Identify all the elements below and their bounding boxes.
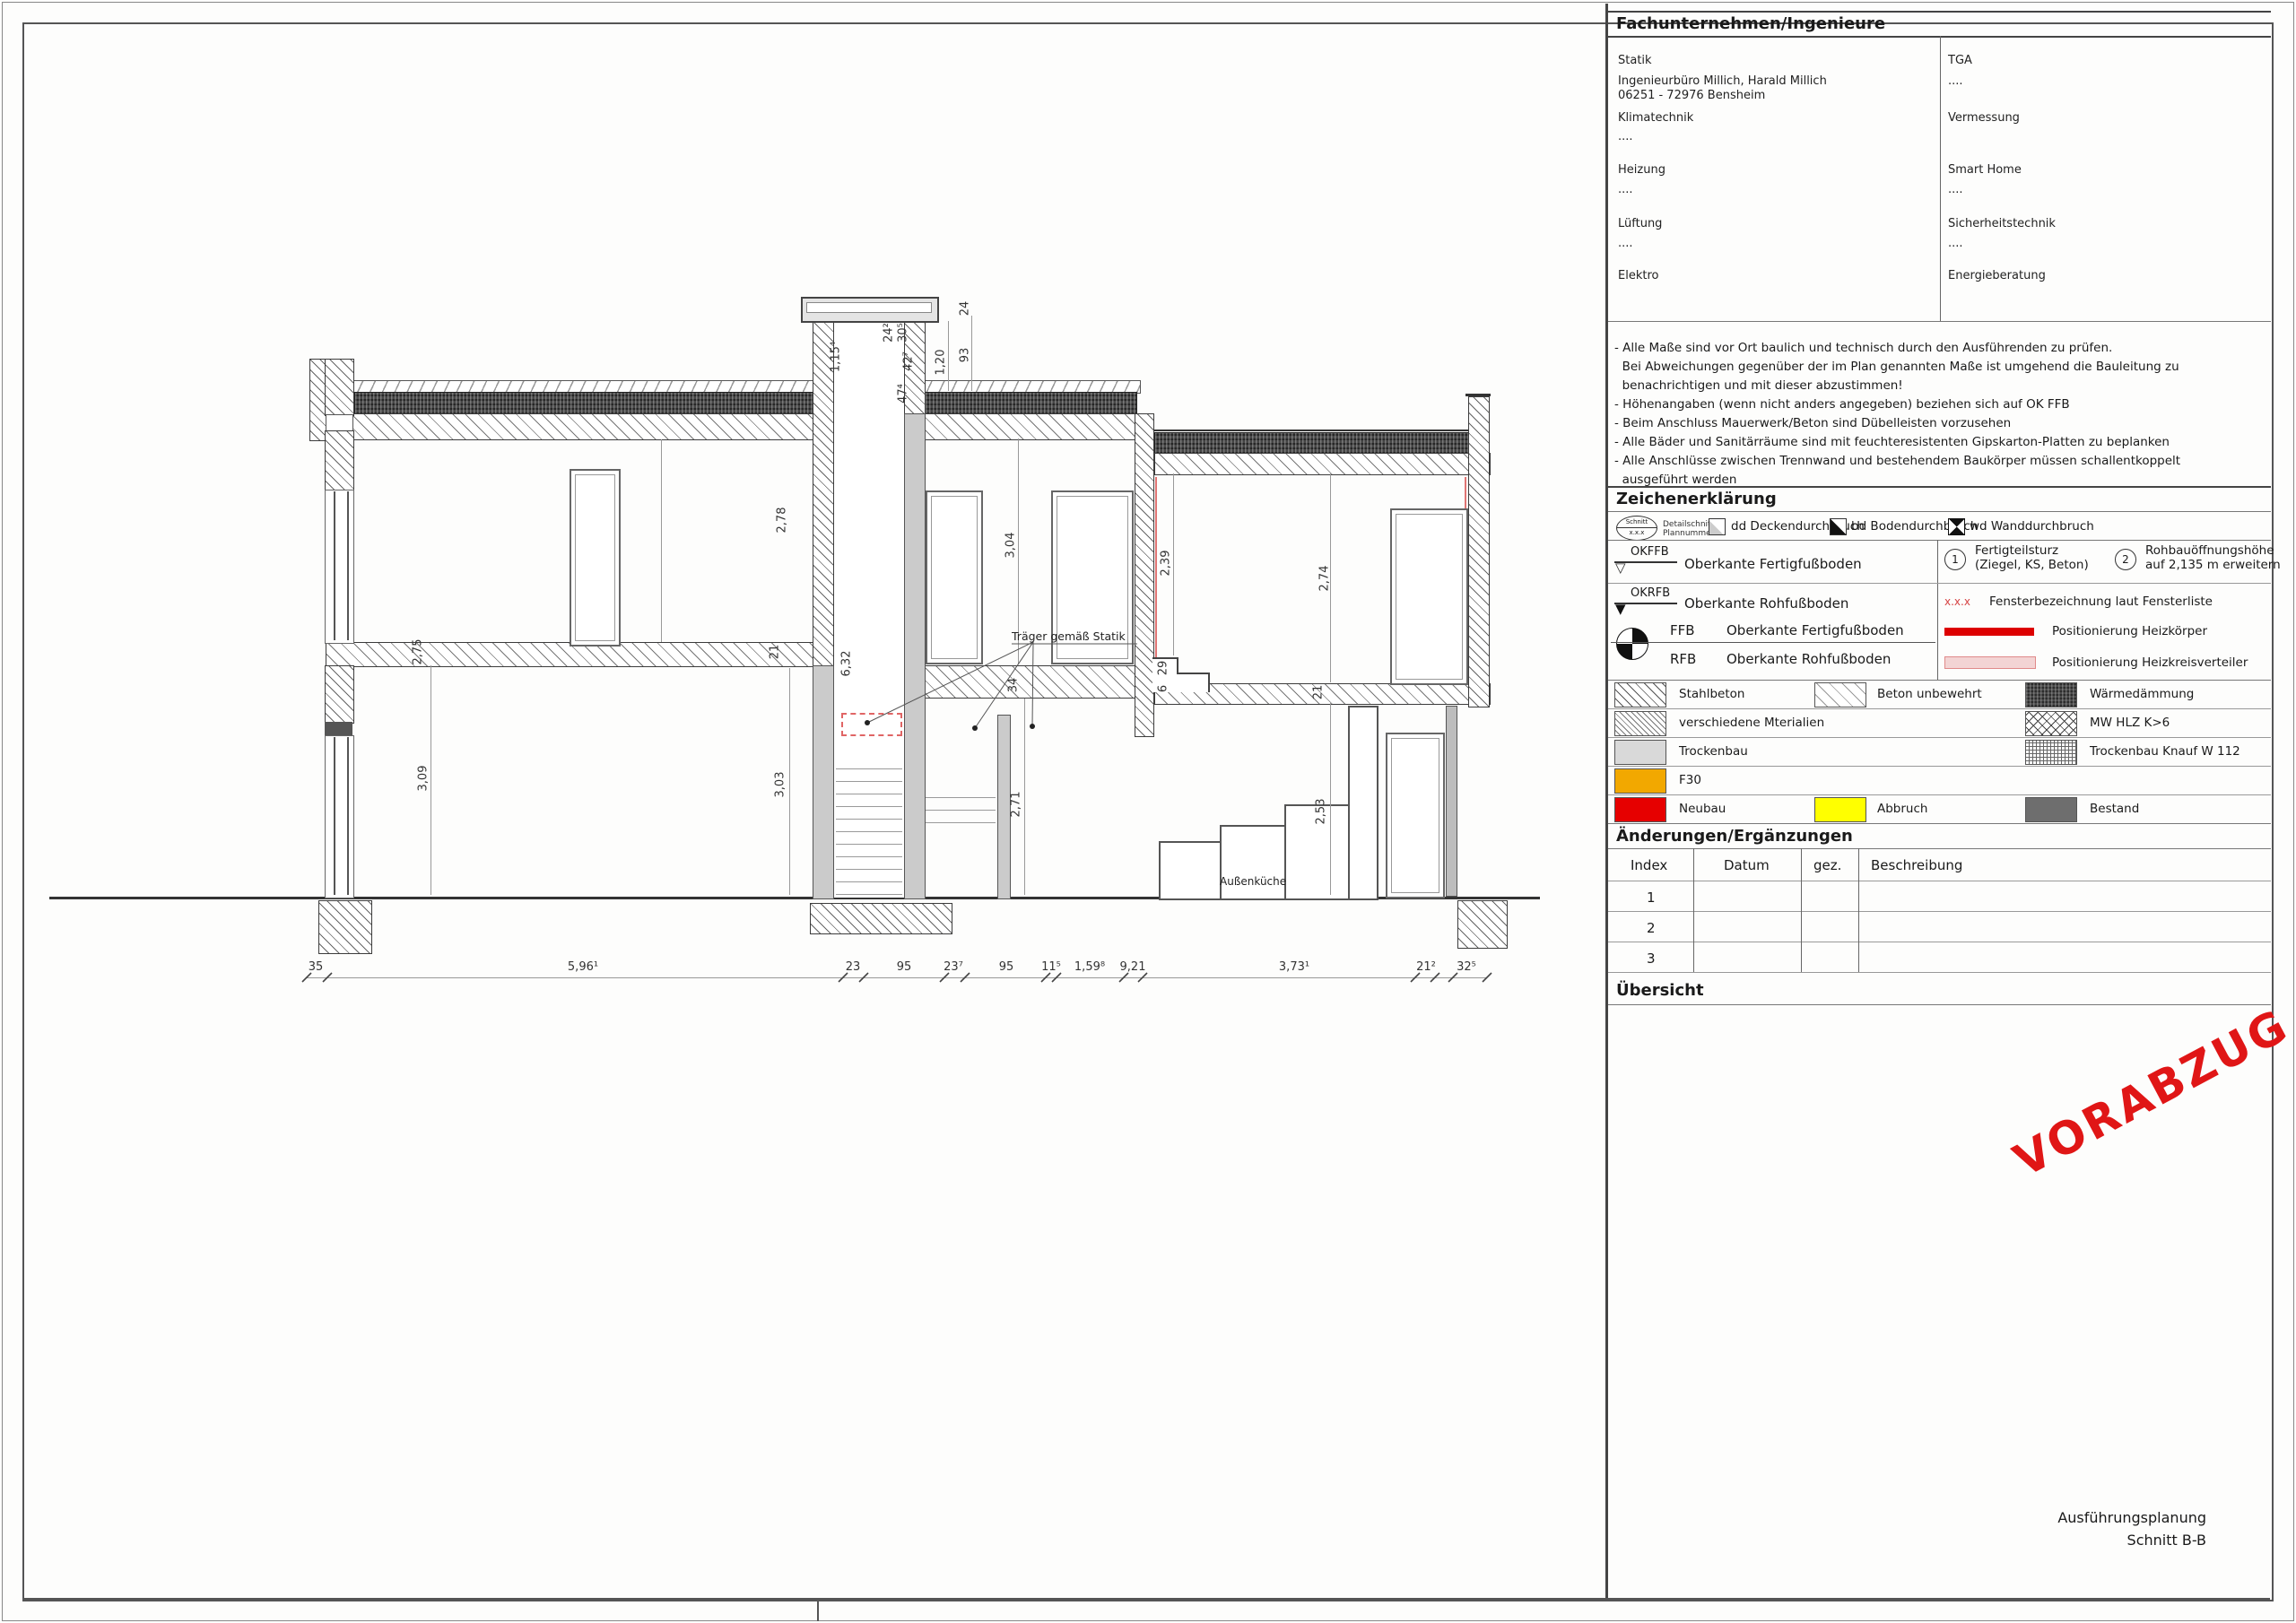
detail-section-symbol: Schnitt x.x.x <box>1616 516 1657 541</box>
chain-dim: 1,59⁸ <box>1074 960 1105 974</box>
heizkreis-label: Positionierung Heizkreisverteiler <box>2052 655 2248 670</box>
divider <box>1937 540 1938 680</box>
table-line <box>1608 911 2271 912</box>
detail-symbol-label: Detailschnitt Plannummer <box>1663 520 1714 538</box>
dimension-label: 34 <box>1007 678 1021 693</box>
note-line: - Alle Maße sind vor Ort baulich und tec… <box>1614 339 2112 358</box>
note-line: - Alle Bäder und Sanitärräume sind mit f… <box>1614 433 2170 452</box>
material-label: Trockenbau <box>1679 744 1748 759</box>
dimension-label: 2,78 <box>776 508 789 534</box>
material-label: Neubau <box>1679 802 1726 816</box>
bd-bodendurchbruch-icon <box>1830 518 1847 535</box>
divider <box>1608 823 2271 824</box>
contact-label: Heizung <box>1618 163 1665 177</box>
material-label: verschiedene Mterialien <box>1679 716 1824 730</box>
swatch-stahlbeton <box>1614 682 1666 707</box>
contact-label: Lüftung <box>1618 217 1662 230</box>
plan-title: Ausführungsplanung Schnitt B-B <box>1883 1506 2206 1551</box>
contact-label: TGA <box>1948 54 1972 67</box>
dimension-label: 24² <box>883 323 896 343</box>
contact-value: .... <box>1618 237 1633 250</box>
wd-wanddurchbruch-icon <box>1948 518 1965 535</box>
index-row-2: 2 <box>1647 920 1656 936</box>
swatch-waermedaemmung <box>2025 682 2077 707</box>
fenster-label: Fensterbezeichnung laut Fensterliste <box>1989 595 2213 609</box>
detail-symbol-bottom: x.x.x <box>1617 528 1657 538</box>
dimension-label: 2,71 <box>1010 792 1023 818</box>
swatch-mw-hlz <box>2025 711 2077 736</box>
chain-dim: 3,73¹ <box>1279 960 1309 974</box>
divider <box>1608 708 2271 709</box>
beam-note: Träger gemäß Statik <box>1012 629 1126 643</box>
heizkoerper-bar <box>1944 628 2034 636</box>
rfb-label: Oberkante Rohfußboden <box>1726 651 1891 667</box>
aenderungen-header: Änderungen/Ergänzungen <box>1616 827 1853 846</box>
dimension-label: 21 <box>1312 685 1326 700</box>
divider <box>1608 848 2271 849</box>
contact-value: .... <box>1948 183 1963 196</box>
contact-label: Statik <box>1618 54 1652 67</box>
swatch-abbruch <box>1814 797 1866 822</box>
note-line: - Höhenangaben (wenn nicht anders angege… <box>1614 395 2070 414</box>
dimension-label: 2,53 <box>1315 799 1328 825</box>
contact-value: .... <box>1948 74 1963 88</box>
chain-dim: 9,21 <box>1120 960 1146 974</box>
contact-value: .... <box>1948 237 1963 250</box>
chain-dim: 95 <box>897 960 912 974</box>
note-line: - Beim Anschluss Mauerwerk/Beton sind Dü… <box>1614 414 2011 433</box>
contact-label: Smart Home <box>1948 163 2022 177</box>
col-header-index: Index <box>1631 857 1667 873</box>
material-label: Stahlbeton <box>1679 687 1744 701</box>
col-header-beschreibung: Beschreibung <box>1871 857 1962 873</box>
table-line <box>1608 942 2271 942</box>
fenster-mark: x.x.x <box>1944 595 1970 608</box>
material-label: F30 <box>1679 773 1701 787</box>
heizkoerper-label: Positionierung Heizkörper <box>2052 624 2207 638</box>
dimension-label: 93 <box>959 348 972 363</box>
swatch-bestand <box>2025 797 2077 822</box>
divider <box>1608 486 2271 488</box>
material-label: Wärmedämmung <box>2090 687 2194 701</box>
wd-label: wd Wanddurchbruch <box>1970 519 2094 534</box>
divider <box>1608 11 2271 13</box>
contact-label: Vermessung <box>1948 111 2020 125</box>
material-label: Abbruch <box>1877 802 1927 816</box>
okrfb-triangle-icon: ▼ <box>1615 603 1626 616</box>
dimension-label: 47⁴ <box>897 384 910 404</box>
divider <box>1608 737 2271 738</box>
okffb-triangle-icon: ▽ <box>1615 561 1626 575</box>
material-label: Bestand <box>2090 802 2139 816</box>
zeichenerklaerung-header: Zeichenerklärung <box>1616 490 1777 508</box>
chain-dim: 35 <box>309 960 324 974</box>
table-line <box>1693 848 1694 972</box>
table-line <box>1858 848 1859 972</box>
chain-dim: 23 <box>846 960 861 974</box>
rohbau-circle: 2 <box>2115 549 2136 570</box>
chain-dim: 11⁵ <box>1041 960 1061 974</box>
dimension-label: 42⁷ <box>902 352 916 371</box>
sturz-circle: 1 <box>1944 549 1966 570</box>
divider <box>1940 36 1941 321</box>
swatch-f30 <box>1614 768 1666 794</box>
ffb-label: Oberkante Fertigfußboden <box>1726 622 1904 638</box>
swatch-knauf <box>2025 740 2077 765</box>
dimension-label: 29 <box>1157 661 1170 676</box>
chain-dim: 95 <box>999 960 1014 974</box>
dimension-label: 3,09 <box>417 766 430 792</box>
okrfb-label: Oberkante Rohfußboden <box>1684 595 1848 612</box>
dimension-label: 24 <box>959 301 972 317</box>
section-drawing: 2,78 3,04 2,39 2,74 3,09 3,03 2,71 2,53 … <box>0 0 1605 1623</box>
contact-label: Sicherheitstechnik <box>1948 217 2056 230</box>
plan-title-line2: Schnitt B-B <box>1883 1529 2206 1551</box>
chain-dim: 32⁵ <box>1457 960 1476 974</box>
plan-title-line1: Ausführungsplanung <box>1883 1506 2206 1529</box>
col-header-gez: gez. <box>1813 857 1841 873</box>
dimension-label: 3,04 <box>1004 533 1018 559</box>
contact-label: Elektro <box>1618 269 1658 282</box>
divider <box>1608 766 2271 767</box>
sturz-label: Fertigteilsturz (Ziegel, KS, Beton) <box>1975 543 2089 572</box>
divider <box>1608 794 2271 795</box>
note-line: Bei Abweichungen gegenüber der im Plan g… <box>1614 358 2179 377</box>
heizkreis-bar <box>1944 656 2036 669</box>
note-line: benachrichtigen und mit dieser abzustimm… <box>1614 377 1903 395</box>
contact-value: .... <box>1618 130 1633 143</box>
titleblock-border <box>1605 4 1608 1599</box>
swatch-verschiedene <box>1614 711 1666 736</box>
material-label: MW HLZ K>6 <box>2090 716 2170 730</box>
divider <box>1608 583 2271 584</box>
okffb-abbr: OKFFB <box>1631 545 1669 559</box>
col-header-datum: Datum <box>1724 857 1770 873</box>
index-row-1: 1 <box>1647 890 1656 906</box>
swatch-beton-unbewehrt <box>1814 682 1866 707</box>
okrfb-abbr: OKRFB <box>1631 586 1670 600</box>
material-label: Trockenbau Knauf W 112 <box>2090 744 2240 759</box>
index-row-3: 3 <box>1647 950 1656 967</box>
rfb-abbr: RFB <box>1670 651 1696 667</box>
uebersicht-header: Übersicht <box>1616 981 1704 1000</box>
plan-sheet: 2,78 3,04 2,39 2,74 3,09 3,03 2,71 2,53 … <box>0 0 2296 1623</box>
outdoor-kitchen-label: Außenküche <box>1220 875 1286 888</box>
dimension-label: 30⁵ <box>897 323 910 343</box>
divider <box>1608 540 2271 541</box>
divider <box>1608 1004 2271 1005</box>
table-line <box>1608 972 2271 973</box>
okffb-label: Oberkante Fertigfußboden <box>1684 556 1862 572</box>
contact-value: Ingenieurbüro Millich, Harald Millich <box>1618 74 1827 88</box>
ffb-rfb-symbol <box>1616 628 1648 660</box>
fachunternehmen-header: Fachunternehmen/Ingenieure <box>1616 14 2279 33</box>
dimension-label: 1,15⁴ <box>830 342 843 372</box>
contact-value: 06251 - 72976 Bensheim <box>1618 89 1765 102</box>
dimension-label: 21 <box>769 645 782 660</box>
ffb-rfb-line <box>1611 642 1935 643</box>
rohbau-label: Rohbauöffnungshöhe auf 2,135 m erweitern <box>2145 543 2281 572</box>
divider <box>1608 511 2271 512</box>
dd-deckendurchbruch-icon <box>1709 518 1726 535</box>
dimension-label: 3,03 <box>774 772 787 798</box>
table-line <box>1801 848 1802 972</box>
dimension-label: 2,39 <box>1160 551 1173 577</box>
chain-dim: 5,96¹ <box>568 960 598 974</box>
chain-dim: 21² <box>1416 960 1436 974</box>
contact-label: Klimatechnik <box>1618 111 1693 125</box>
dimension-label: 6,32 <box>840 651 854 677</box>
ffb-abbr: FFB <box>1670 622 1695 638</box>
contact-value: .... <box>1618 183 1633 196</box>
material-label: Beton unbewehrt <box>1877 687 1982 701</box>
dimension-label: 1,20 <box>935 350 948 376</box>
dimension-label: 6 <box>1157 685 1170 692</box>
chain-dim: 23⁷ <box>944 960 963 974</box>
dim-overlay <box>0 0 1605 1623</box>
divider <box>1608 321 2271 322</box>
divider <box>1608 680 2271 681</box>
swatch-trockenbau <box>1614 740 1666 765</box>
note-line: - Alle Anschlüsse zwischen Trennwand und… <box>1614 452 2180 471</box>
swatch-neubau <box>1614 797 1666 822</box>
detail-symbol-top: Schnitt <box>1617 516 1657 528</box>
contact-label: Energieberatung <box>1948 269 2046 282</box>
table-line <box>1608 881 2271 881</box>
dimension-label: 2,75 <box>412 639 425 665</box>
dimension-label: 2,74 <box>1318 566 1332 592</box>
